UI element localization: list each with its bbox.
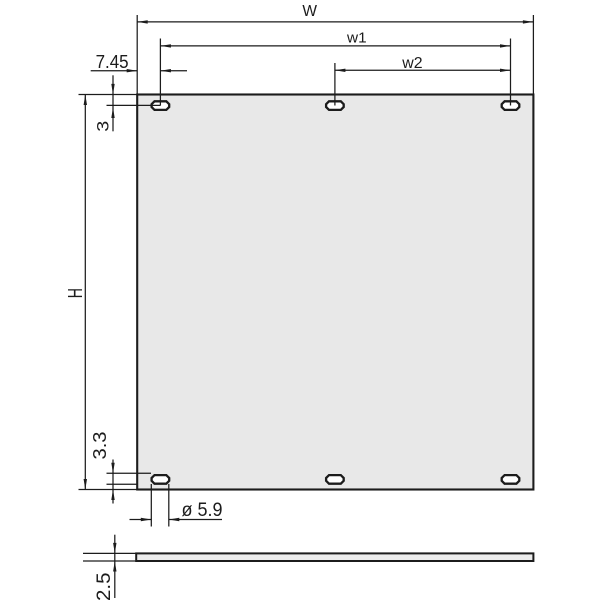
svg-text:ø 5.9: ø 5.9 <box>182 500 223 521</box>
svg-text:w2: w2 <box>401 55 422 72</box>
svg-text:2.5: 2.5 <box>94 573 115 600</box>
svg-text:W: W <box>302 3 317 20</box>
svg-text:3: 3 <box>93 121 112 132</box>
svg-text:H: H <box>64 288 87 298</box>
svg-text:7.45: 7.45 <box>96 51 129 72</box>
svg-text:3.3: 3.3 <box>89 432 110 460</box>
svg-text:w1: w1 <box>346 30 367 47</box>
